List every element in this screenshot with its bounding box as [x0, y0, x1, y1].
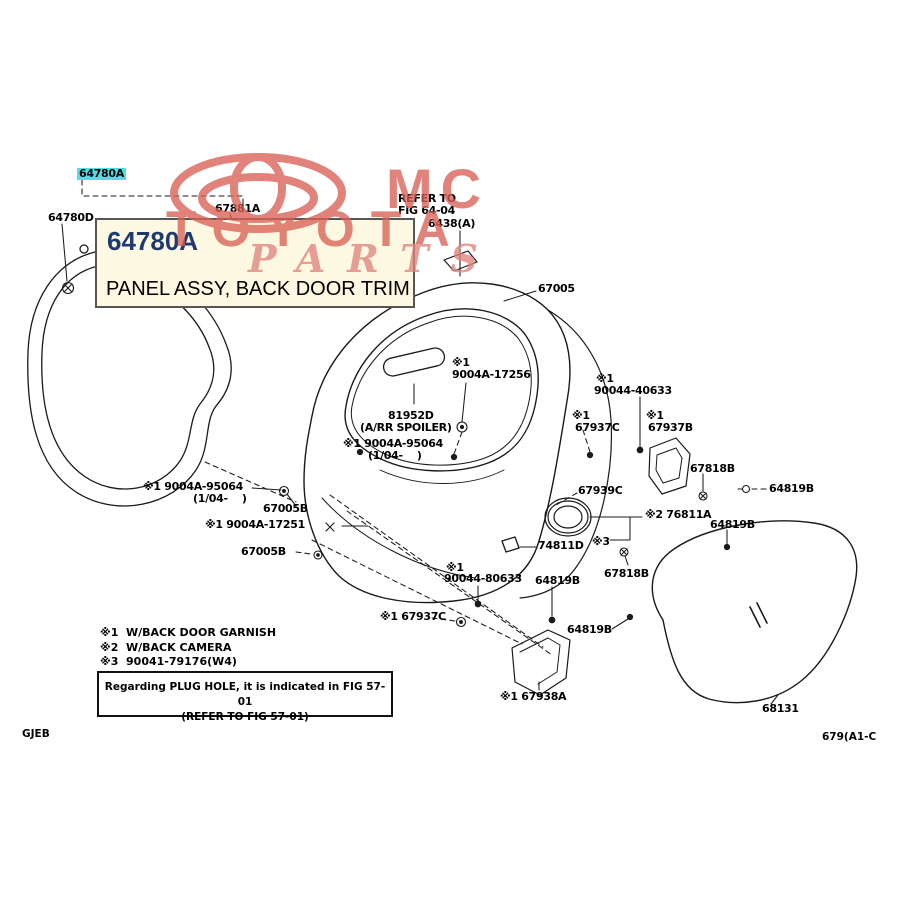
- part-label-6438-a: 6438(A): [428, 218, 475, 230]
- plug-note-line1: Regarding PLUG HOLE, it is indicated in …: [99, 680, 391, 710]
- part-label-64819b: 64819B: [710, 519, 755, 531]
- part-label-90044-80633: 90044-80633: [444, 573, 522, 585]
- part-label-90044-40633: 90044-40633: [594, 385, 672, 397]
- part-label-67818b: 67818B: [690, 463, 735, 475]
- part-label-64780a[interactable]: 64780A: [77, 168, 126, 180]
- footer-code-left: GJEB: [22, 728, 50, 740]
- footnotes: ※1 W/BACK DOOR GARNISH※2 W/BACK CAMERA※3…: [100, 626, 276, 670]
- callout-part-number: 64780A: [107, 226, 198, 257]
- footnote-line: ※3 90041-79176(W4): [100, 655, 276, 670]
- part-label-2-76811a: ※2 76811A: [645, 509, 711, 521]
- part-callout-tooltip: 64780A PANEL ASSY, BACK DOOR TRIM: [95, 218, 415, 308]
- part-label-1-04: (1/04- ): [368, 450, 422, 462]
- part-label-67005b: 67005B: [263, 503, 308, 515]
- part-label-67818b: 67818B: [604, 568, 649, 580]
- footer-code-right: 679(A1-C: [822, 731, 876, 743]
- part-label-67881a: 67881A: [215, 203, 260, 215]
- part-labels-layer: 64780A64780D67881AREFER TOFIG 64-046438(…: [0, 0, 900, 900]
- plug-hole-note-box: Regarding PLUG HOLE, it is indicated in …: [97, 671, 393, 717]
- part-label-67005: 67005: [538, 283, 575, 295]
- plug-note-line2: (REFER TO FIG 57-01): [99, 710, 391, 725]
- part-label-67937b: 67937B: [648, 422, 693, 434]
- part-label-64819b: 64819B: [567, 624, 612, 636]
- part-label-67005b: 67005B: [241, 546, 286, 558]
- parts-diagram-page: 64780A64780D67881AREFER TOFIG 64-046438(…: [0, 0, 900, 900]
- part-label-67937c: 67937C: [575, 422, 620, 434]
- footnote-line: ※1 W/BACK DOOR GARNISH: [100, 626, 276, 641]
- part-label-1-04: (1/04- ): [193, 493, 247, 505]
- part-label-1-67938a: ※1 67938A: [500, 691, 566, 703]
- part-label-9004a-17256: 9004A-17256: [452, 369, 531, 381]
- part-label-64819b: 64819B: [535, 575, 580, 587]
- part-label-a-rr-spoiler: (A/RR SPOILER): [360, 422, 452, 434]
- part-label-3: ※3: [592, 536, 610, 548]
- part-label-64780d: 64780D: [48, 212, 94, 224]
- part-label-67939c: 67939C: [578, 485, 623, 497]
- part-label-68131: 68131: [762, 703, 799, 715]
- part-label-1-67937c: ※1 67937C: [380, 611, 446, 623]
- part-label-64819b: 64819B: [769, 483, 814, 495]
- part-label-1-9004a-17251: ※1 9004A-17251: [205, 519, 305, 531]
- footnote-line: ※2 W/BACK CAMERA: [100, 641, 276, 656]
- callout-description: PANEL ASSY, BACK DOOR TRIM: [106, 278, 410, 301]
- part-label-fig-64-04: FIG 64-04: [398, 205, 455, 217]
- part-label-74811d: 74811D: [538, 540, 584, 552]
